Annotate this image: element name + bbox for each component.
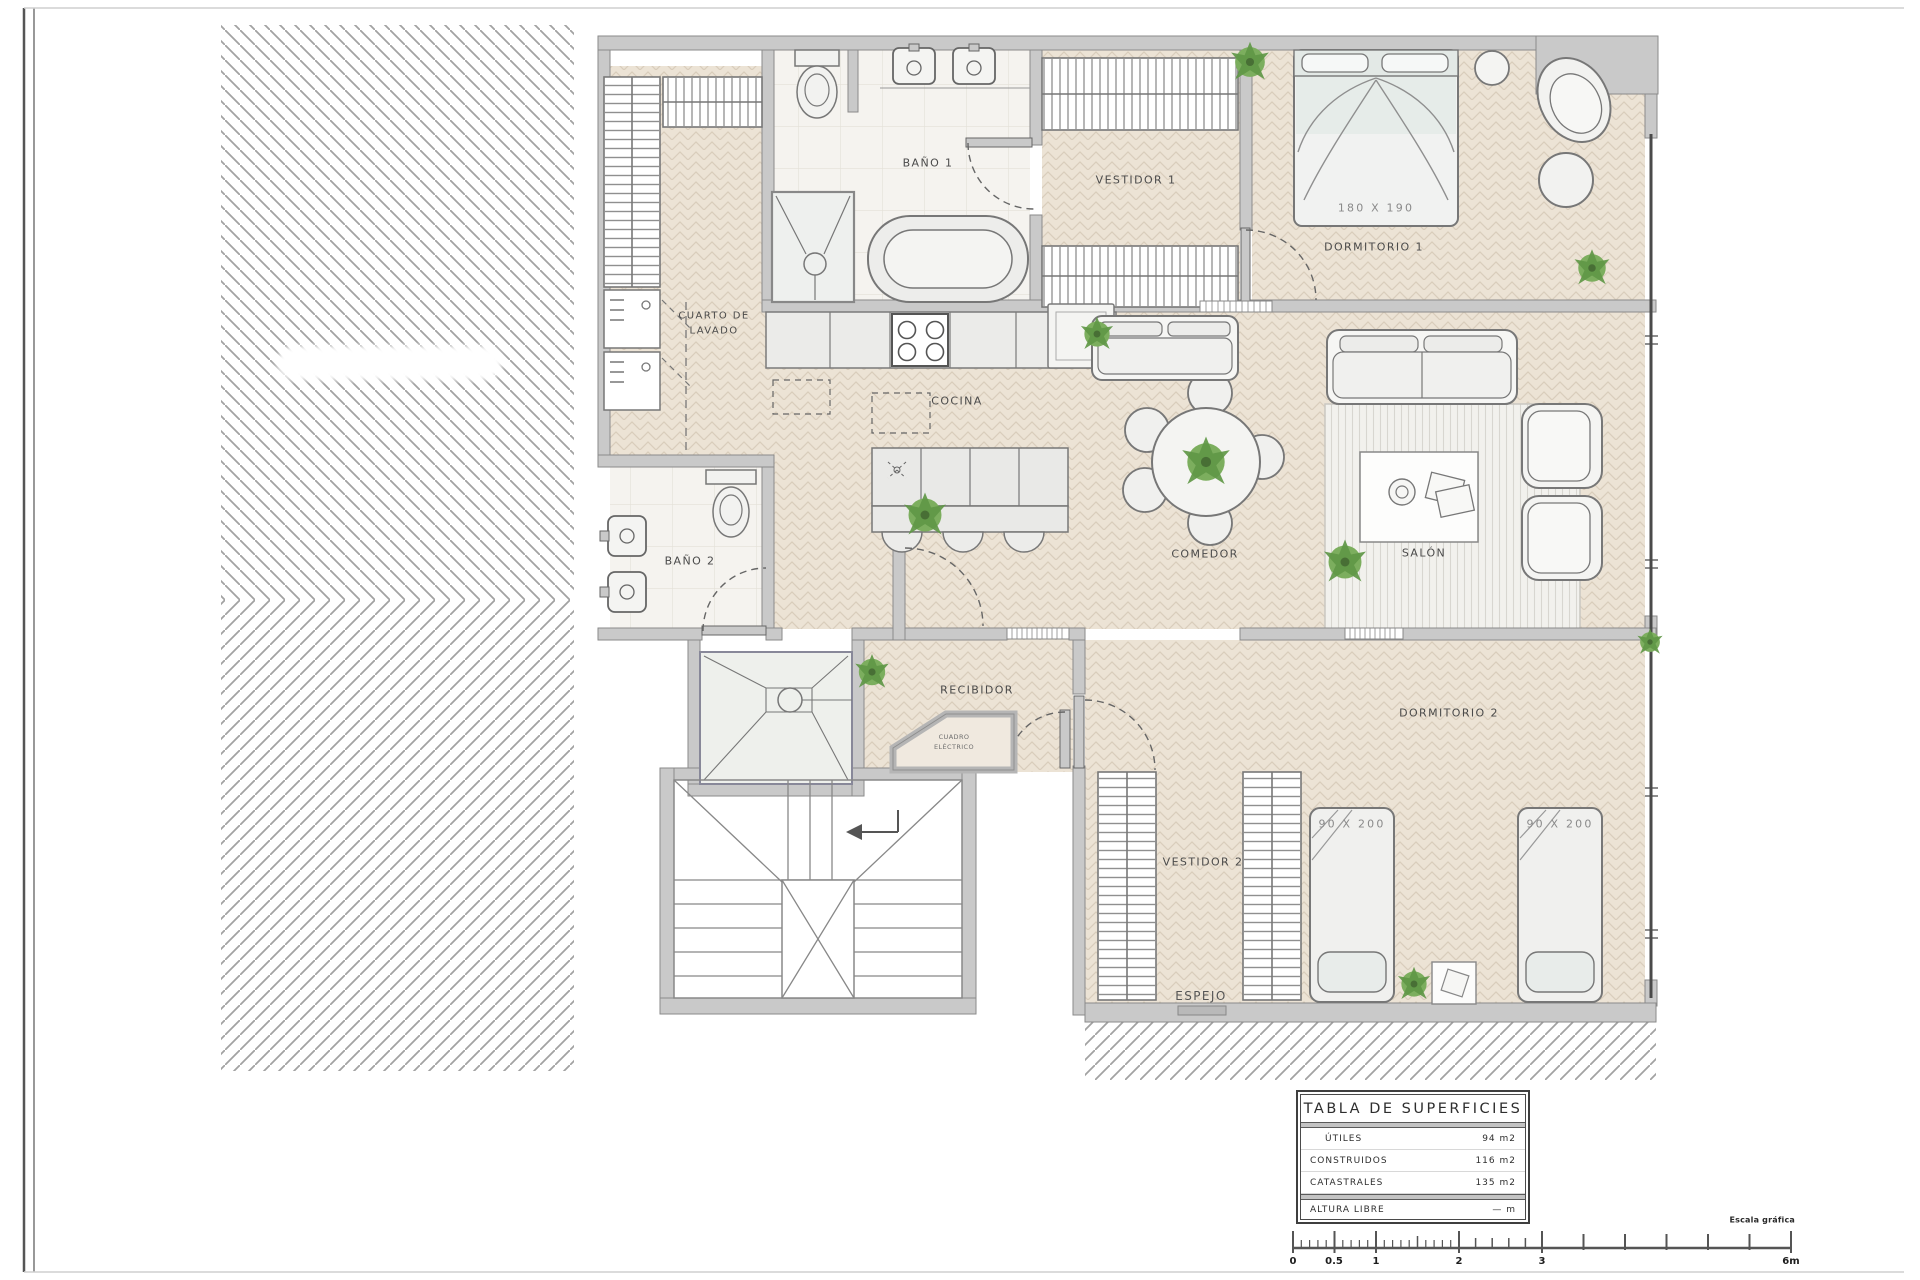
scale-tick-label: 2 — [1456, 1256, 1463, 1267]
scale-tick-label: 0.5 — [1325, 1256, 1343, 1267]
bed-dimension-dorm1: 180 X 190 — [1338, 202, 1414, 215]
single-bed — [1518, 808, 1602, 1002]
row-label: CATASTRALES — [1301, 1178, 1383, 1188]
direction-arrow — [846, 810, 898, 840]
bed-dimension-dorm2-left: 90 X 200 — [1318, 818, 1385, 831]
sink — [893, 44, 935, 84]
side-table — [1475, 51, 1509, 85]
pillow — [1318, 952, 1386, 992]
pouf — [1539, 153, 1593, 207]
table-row: CONSTRUIDOS 116 m2 — [1301, 1150, 1525, 1172]
window-band — [1645, 134, 1658, 998]
row-value: 94 m2 — [1482, 1134, 1525, 1144]
room-label-vestidor2: VESTIDOR 2 — [1163, 856, 1244, 869]
sink — [953, 44, 995, 84]
armchair — [1522, 404, 1602, 488]
table-row: ÚTILES 94 m2 — [1301, 1128, 1525, 1150]
door-leaf — [1241, 228, 1250, 302]
shower — [772, 192, 854, 302]
toilet-tank — [706, 470, 756, 484]
door-leaf — [702, 626, 766, 635]
bathtub — [868, 216, 1028, 302]
scale-tick-label: 6m — [1782, 1256, 1799, 1267]
pillow — [1526, 952, 1594, 992]
room-label-bano1: BAÑO 1 — [903, 157, 954, 170]
table-footer-row: ALTURA LIBRE — m — [1301, 1200, 1525, 1219]
surface-table: TABLA DE SUPERFICIES ÚTILES 94 m2 CONSTR… — [1296, 1090, 1530, 1224]
sink — [600, 516, 646, 556]
sink — [600, 572, 646, 612]
row-value: 135 m2 — [1475, 1178, 1525, 1188]
cooktop — [892, 314, 948, 366]
row-value: — m — [1492, 1205, 1525, 1215]
shower-room — [700, 652, 852, 784]
sliding-door — [1007, 628, 1069, 639]
sofa — [1092, 316, 1238, 380]
annotation-cuadro-2: ELÉCTRICO — [934, 743, 974, 751]
table-row: CATASTRALES 135 m2 — [1301, 1172, 1525, 1194]
row-label: ALTURA LIBRE — [1301, 1205, 1385, 1215]
entry-door-leaf — [1060, 710, 1070, 768]
room-label-cocina: COCINA — [931, 395, 982, 408]
pillow — [1382, 54, 1448, 72]
kitchen-island — [872, 448, 1068, 552]
surface-table-title: TABLA DE SUPERFICIES — [1301, 1095, 1525, 1122]
scale-tick-label: 1 — [1373, 1256, 1380, 1267]
room-label-bano2: BAÑO 2 — [665, 555, 716, 568]
scale-tick-label: 0 — [1290, 1256, 1297, 1267]
toilet-tank — [795, 50, 839, 66]
room-label-dormitorio2: DORMITORIO 2 — [1399, 707, 1499, 720]
redacted-label — [277, 346, 502, 380]
room-label-dormitorio1: DORMITORIO 1 — [1324, 241, 1424, 254]
row-label: CONSTRUIDOS — [1301, 1156, 1388, 1166]
annotation-cuadro-1: CUADRO — [939, 733, 970, 741]
double-bed — [1294, 50, 1458, 226]
row-value: 116 m2 — [1475, 1156, 1525, 1166]
bed-dimension-dorm2-right: 90 X 200 — [1526, 818, 1593, 831]
scale-bar — [1293, 1231, 1791, 1253]
radiator — [1345, 628, 1403, 639]
coffee-table — [1360, 452, 1478, 542]
room-label-espejo: ESPEJO — [1175, 989, 1226, 1003]
radiator — [1200, 301, 1272, 312]
stools — [882, 532, 1044, 552]
door-leaf — [966, 138, 1032, 147]
room-label-cuarto-lavado-1: CUARTO DE — [678, 311, 749, 322]
scale-tick-label: 3 — [1539, 1256, 1546, 1267]
room-label-recibidor: RECIBIDOR — [940, 684, 1014, 697]
mirror — [1178, 1006, 1226, 1015]
single-bed — [1310, 808, 1394, 1002]
room-label-comedor: COMEDOR — [1171, 548, 1238, 561]
pillow — [1302, 54, 1368, 72]
scale-caption: Escala gráfica — [1729, 1216, 1795, 1225]
sofa — [1327, 330, 1517, 404]
row-label: ÚTILES — [1301, 1134, 1362, 1144]
floor-plan-drawing — [0, 0, 1920, 1280]
room-label-vestidor1: VESTIDOR 1 — [1096, 174, 1177, 187]
staircase — [674, 780, 962, 998]
room-label-salon: SALÓN — [1402, 547, 1446, 560]
floor-plan-sheet: BAÑO 1 VESTIDOR 1 DORMITORIO 1 180 X 190… — [0, 0, 1920, 1280]
armchair — [1522, 496, 1602, 580]
room-label-cuarto-lavado-2: LAVADO — [689, 326, 738, 337]
door-leaf — [1074, 696, 1084, 768]
